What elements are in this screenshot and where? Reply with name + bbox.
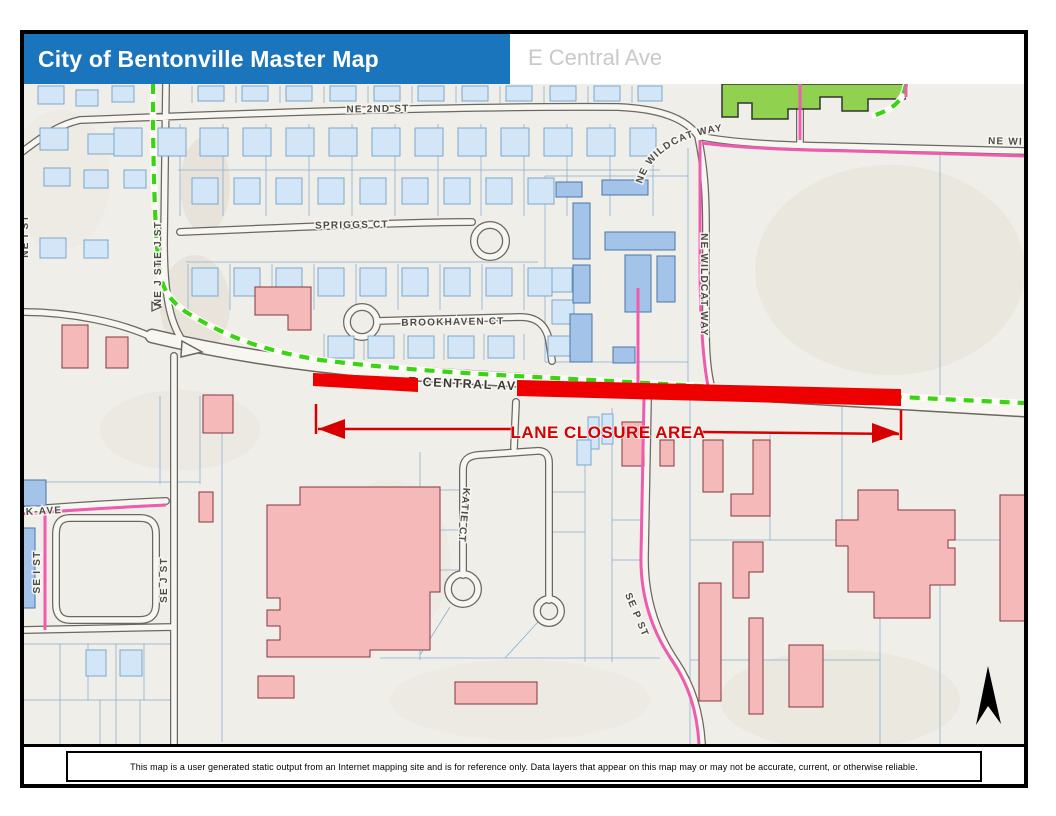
street-label-k-ave: K-AVE [26, 505, 63, 518]
page-frame: City of Bentonville Master Map E Central… [20, 30, 1028, 788]
lane-closure-label: LANE CLOSURE AREA [511, 423, 706, 442]
street-label-se-j-st: SE J ST [159, 557, 170, 603]
map-header: City of Bentonville Master Map E Central… [24, 34, 1024, 84]
street-label-se-i-st: SE I ST [32, 551, 43, 594]
street-label-ne-wildcat-way-clipped: NE WI [988, 136, 1023, 148]
street-label-ne-wildcat-way-vertical: NE WILDCAT WAY [698, 233, 709, 336]
page-title: City of Bentonville Master Map [38, 46, 379, 73]
street-label-brookhaven-ct: BROOKHAVEN CT [401, 316, 504, 329]
map-svg: NE 2ND ST SPRIGGS CT BROOKHAVEN CT E CEN… [24, 84, 1024, 744]
street-label-spriggs-ct: SPRIGGS CT [315, 219, 389, 231]
map-canvas: NE 2ND ST SPRIGGS CT BROOKHAVEN CT E CEN… [24, 84, 1024, 747]
disclaimer-text: This map is a user generated static outp… [130, 762, 918, 772]
street-label-ne-i-st: NE I ST [24, 214, 31, 257]
footer-strip: This map is a user generated static outp… [24, 747, 1024, 784]
map-subtitle: E Central Ave [528, 45, 662, 71]
street-label-ne-j-st-lower: NE J ST [153, 260, 164, 306]
title-banner: City of Bentonville Master Map [24, 34, 510, 84]
disclaimer-box: This map is a user generated static outp… [66, 751, 982, 782]
street-label-ne-2nd-st: NE 2ND ST [346, 103, 409, 115]
